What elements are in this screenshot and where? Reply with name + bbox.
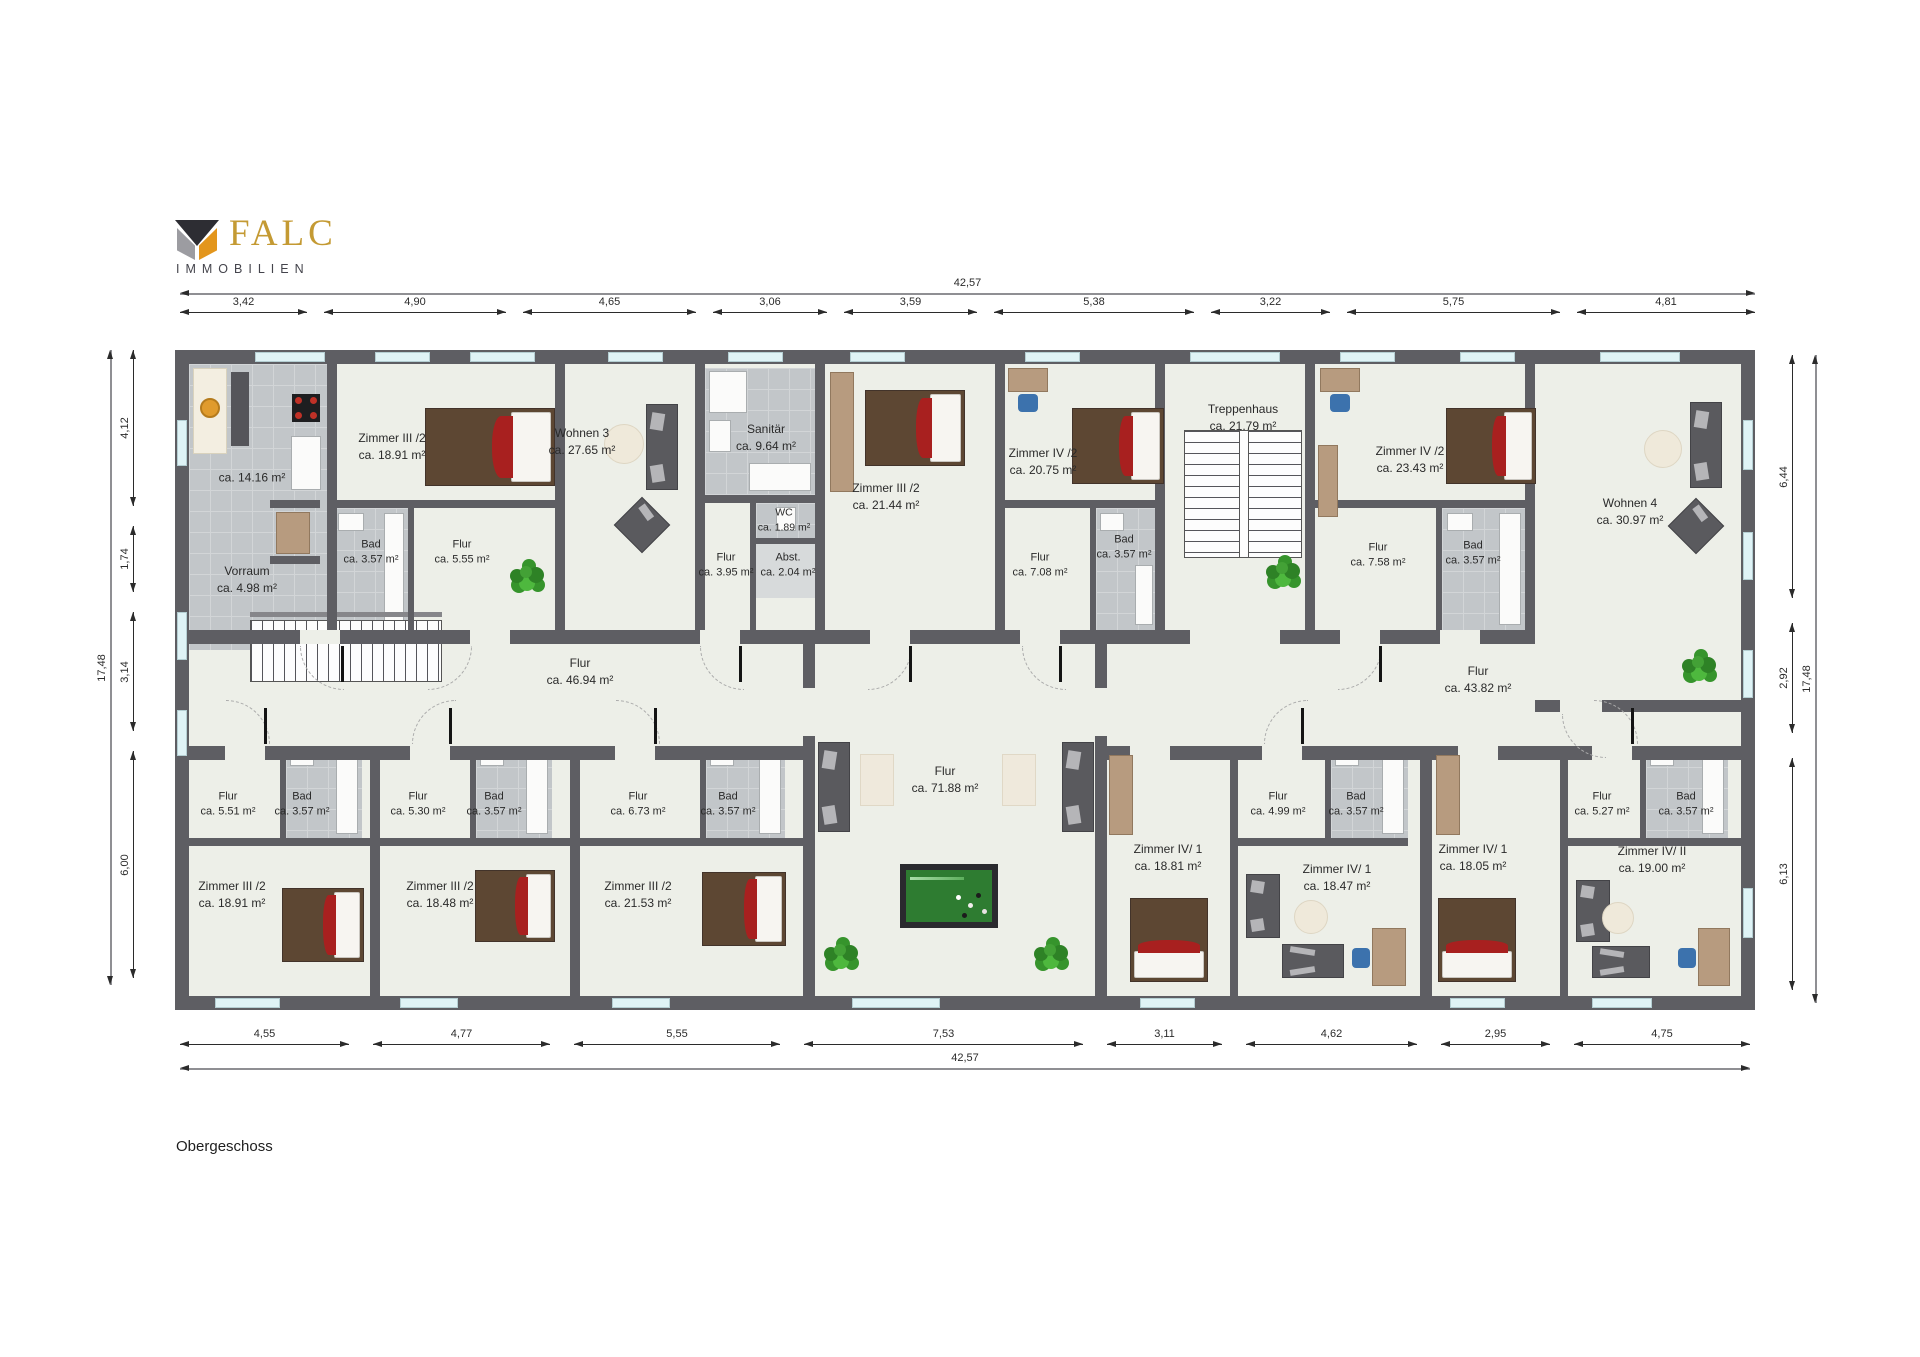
window bbox=[1140, 998, 1195, 1008]
room-label-zimmer-III-2-b: Zimmer III /2ca. 21.44 m² bbox=[852, 480, 919, 514]
wall bbox=[1420, 746, 1432, 996]
window bbox=[608, 352, 663, 362]
room-label-bad-5: Badca. 3.57 m² bbox=[1658, 790, 1713, 821]
room-label-zimmer-IV-1-b: Zimmer IV/ 1ca. 18.47 m² bbox=[1303, 861, 1372, 895]
room-label-wohnen-3: Wohnen 3ca. 27.65 m² bbox=[549, 425, 616, 459]
wall bbox=[370, 746, 380, 996]
window bbox=[375, 352, 430, 362]
kitchen-sink bbox=[291, 436, 321, 490]
room-label-zimmer-III-2-c: Zimmer III /2ca. 18.91 m² bbox=[198, 878, 265, 912]
bed bbox=[1130, 898, 1208, 982]
round-rug bbox=[1644, 430, 1682, 468]
rug bbox=[1002, 754, 1036, 806]
kitchen-cabinet bbox=[231, 372, 249, 446]
door-opening bbox=[410, 746, 450, 760]
sofa bbox=[1592, 946, 1650, 978]
door-opening bbox=[300, 630, 340, 644]
room-label-treppenhaus: Treppenhausca. 21.79 m² bbox=[1208, 401, 1278, 435]
room-label-wc: WCca. 1.89 m² bbox=[758, 505, 811, 534]
wall bbox=[1305, 364, 1315, 644]
wall bbox=[695, 364, 705, 640]
sideboard bbox=[1318, 445, 1338, 517]
wardrobe bbox=[1109, 755, 1133, 835]
dim-top-7: 3,22 bbox=[1211, 312, 1330, 313]
room-label-zimmer-III-2-e: Zimmer III /2ca. 21.53 m² bbox=[604, 878, 671, 912]
wall bbox=[189, 838, 370, 846]
wall bbox=[380, 838, 570, 846]
wall bbox=[756, 538, 815, 544]
room-label-bad-3: Badca. 3.57 m² bbox=[700, 790, 755, 821]
cooktop bbox=[292, 394, 320, 422]
sofa bbox=[1282, 944, 1344, 978]
room-label-bad-2: Badca. 3.57 m² bbox=[466, 790, 521, 821]
dim-bottom-4: 7,53 bbox=[804, 1044, 1083, 1045]
door-leaf bbox=[1631, 708, 1634, 744]
door-opening bbox=[803, 688, 815, 736]
bed bbox=[425, 408, 555, 486]
window bbox=[215, 998, 280, 1008]
window bbox=[1450, 998, 1505, 1008]
desk bbox=[1320, 368, 1360, 392]
desk-chair bbox=[1330, 394, 1350, 412]
window bbox=[1190, 352, 1280, 362]
wall bbox=[570, 746, 580, 996]
room-label-zimmer-IV-1-c: Zimmer IV/ 1ca. 18.05 m² bbox=[1439, 841, 1508, 875]
room-label-flur-center: Flurca. 71.88 m² bbox=[912, 763, 979, 797]
dim-top-2: 4,90 bbox=[324, 312, 506, 313]
room-label-zimmer-IV-II: Zimmer IV/ IIca. 19.00 m² bbox=[1618, 843, 1687, 877]
dim-top-6: 5,38 bbox=[994, 312, 1194, 313]
door-opening bbox=[1458, 746, 1498, 760]
door-opening bbox=[870, 630, 910, 644]
dim-left-3: 3,14 bbox=[133, 612, 134, 731]
dim-bottom-1: 4,55 bbox=[180, 1044, 349, 1045]
dim-top-8: 5,75 bbox=[1347, 312, 1560, 313]
plant bbox=[834, 944, 846, 956]
dim-bottom-8: 4,75 bbox=[1574, 1044, 1750, 1045]
sofa bbox=[818, 742, 850, 832]
room-label-flur-3: Flurca. 6.73 m² bbox=[610, 790, 665, 821]
room-label-flur-1: Flurca. 5.51 m² bbox=[200, 790, 255, 821]
door-opening bbox=[1340, 630, 1380, 644]
room-label-ausgabekueche: ca. 14.16 m² bbox=[219, 470, 286, 487]
room-label-bad-a: Badca. 3.57 m² bbox=[343, 538, 398, 569]
dim-top-5: 3,59 bbox=[844, 312, 977, 313]
sofa bbox=[1246, 874, 1280, 938]
floor-plan-page: FALC IMMOBILIEN 42,57 3,42 4,90 4,65 3,0… bbox=[0, 0, 1920, 1357]
dim-right-total: 17,48 bbox=[1815, 355, 1817, 1003]
window bbox=[1025, 352, 1080, 362]
wall bbox=[1280, 630, 1535, 644]
window bbox=[1460, 352, 1515, 362]
wall bbox=[1238, 838, 1408, 846]
door-opening bbox=[470, 630, 510, 644]
door-leaf bbox=[1379, 646, 1382, 682]
bed bbox=[1438, 898, 1516, 982]
dim-bottom-total: 42,57 bbox=[180, 1068, 1750, 1070]
dim-top-total: 42,57 bbox=[180, 293, 1755, 295]
door-opening bbox=[225, 746, 265, 760]
window bbox=[1592, 998, 1652, 1008]
bed bbox=[282, 888, 364, 962]
door-leaf bbox=[909, 646, 912, 682]
room-label-vorraum: Vorraumca. 4.98 m² bbox=[217, 563, 277, 597]
bed bbox=[475, 870, 555, 942]
door-opening bbox=[1095, 688, 1107, 736]
door-leaf bbox=[341, 646, 344, 682]
logo-subtitle: IMMOBILIEN bbox=[176, 262, 310, 276]
room-label-flur-a: Flurca. 5.55 m² bbox=[434, 538, 489, 569]
sofa bbox=[1690, 402, 1722, 488]
room-label-zimmer-IV-2-a: Zimmer IV /2ca. 20.75 m² bbox=[1009, 445, 1078, 479]
desk bbox=[1698, 928, 1730, 986]
window bbox=[1743, 650, 1753, 698]
door-opening bbox=[615, 746, 655, 760]
plant bbox=[1692, 656, 1704, 668]
wall bbox=[270, 500, 320, 508]
wall bbox=[1230, 746, 1238, 996]
room-label-flur-2: Flurca. 5.30 m² bbox=[390, 790, 445, 821]
window bbox=[1743, 532, 1753, 580]
wardrobe bbox=[830, 372, 854, 492]
dim-top-4: 3,06 bbox=[713, 312, 827, 313]
window bbox=[255, 352, 325, 362]
wall bbox=[1525, 364, 1535, 630]
window bbox=[1600, 352, 1680, 362]
window bbox=[1743, 420, 1753, 470]
wall bbox=[1315, 500, 1525, 508]
dim-left-total: 17,48 bbox=[110, 350, 112, 985]
logo-brand: FALC bbox=[229, 212, 337, 255]
room-label-flur-left: Flurca. 46.94 m² bbox=[547, 655, 614, 689]
wall bbox=[995, 500, 1165, 508]
door-leaf bbox=[739, 646, 742, 682]
wall bbox=[1090, 508, 1096, 630]
plant bbox=[520, 566, 532, 578]
wall bbox=[270, 556, 320, 564]
bench bbox=[276, 512, 310, 554]
dim-left-1: 4,12 bbox=[133, 350, 134, 506]
room-label-zimmer-IV-2-b: Zimmer IV /2ca. 23.43 m² bbox=[1376, 443, 1445, 477]
wall bbox=[705, 495, 815, 503]
dim-right-3: 6,13 bbox=[1792, 758, 1793, 990]
staircase-treppenhaus bbox=[1184, 430, 1302, 558]
billiard-table bbox=[900, 864, 998, 928]
round-rug bbox=[1294, 900, 1328, 934]
room-label-zimmer-III-2-a: Zimmer III /2ca. 18.91 m² bbox=[358, 430, 425, 464]
room-label-sanitaer: Sanitärca. 9.64 m² bbox=[736, 421, 796, 455]
dim-right-2: 2,92 bbox=[1792, 623, 1793, 733]
dim-bottom-5: 3,11 bbox=[1107, 1044, 1222, 1045]
round-rug bbox=[1602, 902, 1634, 934]
window bbox=[612, 998, 670, 1008]
desk-chair bbox=[1678, 948, 1696, 968]
room-label-flur-d: Flurca. 7.58 m² bbox=[1350, 541, 1405, 572]
wardrobe bbox=[1436, 755, 1460, 835]
dim-bottom-7: 2,95 bbox=[1441, 1044, 1550, 1045]
room-label-zimmer-III-2-d: Zimmer III /2ca. 18.48 m² bbox=[406, 878, 473, 912]
room-label-flur-b: Flurca. 3.95 m² bbox=[698, 551, 753, 582]
door-opening bbox=[1130, 746, 1170, 760]
bed bbox=[1446, 408, 1536, 484]
room-label-flur-4: Flurca. 4.99 m² bbox=[1250, 790, 1305, 821]
window bbox=[400, 998, 458, 1008]
sofa bbox=[646, 404, 678, 490]
room-label-bad-b: Badca. 3.57 m² bbox=[1096, 533, 1151, 564]
plant bbox=[1044, 944, 1056, 956]
wall bbox=[815, 364, 825, 640]
dim-left-2: 1,74 bbox=[133, 526, 134, 592]
bed bbox=[1072, 408, 1164, 484]
dim-right-1: 6,44 bbox=[1792, 355, 1793, 598]
room-label-flur-5: Flurca. 5.27 m² bbox=[1574, 790, 1629, 821]
door-leaf bbox=[264, 708, 267, 744]
wall bbox=[1560, 746, 1568, 996]
desk bbox=[1008, 368, 1048, 392]
desk-chair bbox=[1018, 394, 1038, 412]
room-label-zimmer-IV-1-a: Zimmer IV/ 1ca. 18.81 m² bbox=[1134, 841, 1203, 875]
dim-top-1: 3,42 bbox=[180, 312, 307, 313]
rug bbox=[860, 754, 894, 806]
window bbox=[177, 710, 187, 756]
window bbox=[728, 352, 783, 362]
door-opening bbox=[700, 630, 740, 644]
desk-chair bbox=[1352, 948, 1370, 968]
desk bbox=[1372, 928, 1406, 986]
door-leaf bbox=[449, 708, 452, 744]
wall bbox=[408, 508, 414, 630]
room-label-bad-1: Badca. 3.57 m² bbox=[274, 790, 329, 821]
door-opening bbox=[1440, 630, 1480, 644]
bed bbox=[865, 390, 965, 466]
door-leaf bbox=[1059, 646, 1062, 682]
sofa bbox=[1062, 742, 1094, 832]
dim-top-3: 4,65 bbox=[523, 312, 696, 313]
wall bbox=[995, 364, 1005, 630]
window bbox=[177, 612, 187, 660]
kitchen-bowl bbox=[200, 398, 220, 418]
dim-top-9: 4,81 bbox=[1577, 312, 1755, 313]
wall bbox=[580, 838, 803, 846]
room-label-bad-c: Badca. 3.57 m² bbox=[1445, 539, 1500, 570]
window bbox=[177, 420, 187, 466]
room-label-abst: Abst.ca. 2.04 m² bbox=[760, 551, 815, 582]
room-label-flur-right: Flurca. 43.82 m² bbox=[1445, 663, 1512, 697]
bed bbox=[702, 872, 786, 946]
door-leaf bbox=[1301, 708, 1304, 744]
window bbox=[850, 352, 905, 362]
window bbox=[1743, 888, 1753, 938]
dim-left-4: 6,00 bbox=[133, 751, 134, 978]
room-bad-b bbox=[1096, 508, 1156, 630]
window bbox=[470, 352, 535, 362]
room-label-wohnen-4: Wohnen 4ca. 30.97 m² bbox=[1597, 495, 1664, 529]
door-opening bbox=[1262, 746, 1302, 760]
plant bbox=[1276, 562, 1288, 574]
window bbox=[1340, 352, 1395, 362]
wall bbox=[1436, 508, 1442, 630]
wall bbox=[327, 500, 565, 508]
door-leaf bbox=[654, 708, 657, 744]
wall bbox=[1640, 746, 1646, 838]
door-opening bbox=[1020, 630, 1060, 644]
dim-bottom-2: 4,77 bbox=[373, 1044, 550, 1045]
dim-bottom-6: 4,62 bbox=[1246, 1044, 1417, 1045]
floor-name: Obergeschoss bbox=[176, 1138, 273, 1155]
falc-logo-icon bbox=[175, 220, 219, 260]
room-label-flur-c: Flurca. 7.08 m² bbox=[1012, 551, 1067, 582]
window bbox=[852, 998, 940, 1008]
room-label-bad-4: Badca. 3.57 m² bbox=[1328, 790, 1383, 821]
dim-bottom-3: 5,55 bbox=[574, 1044, 780, 1045]
